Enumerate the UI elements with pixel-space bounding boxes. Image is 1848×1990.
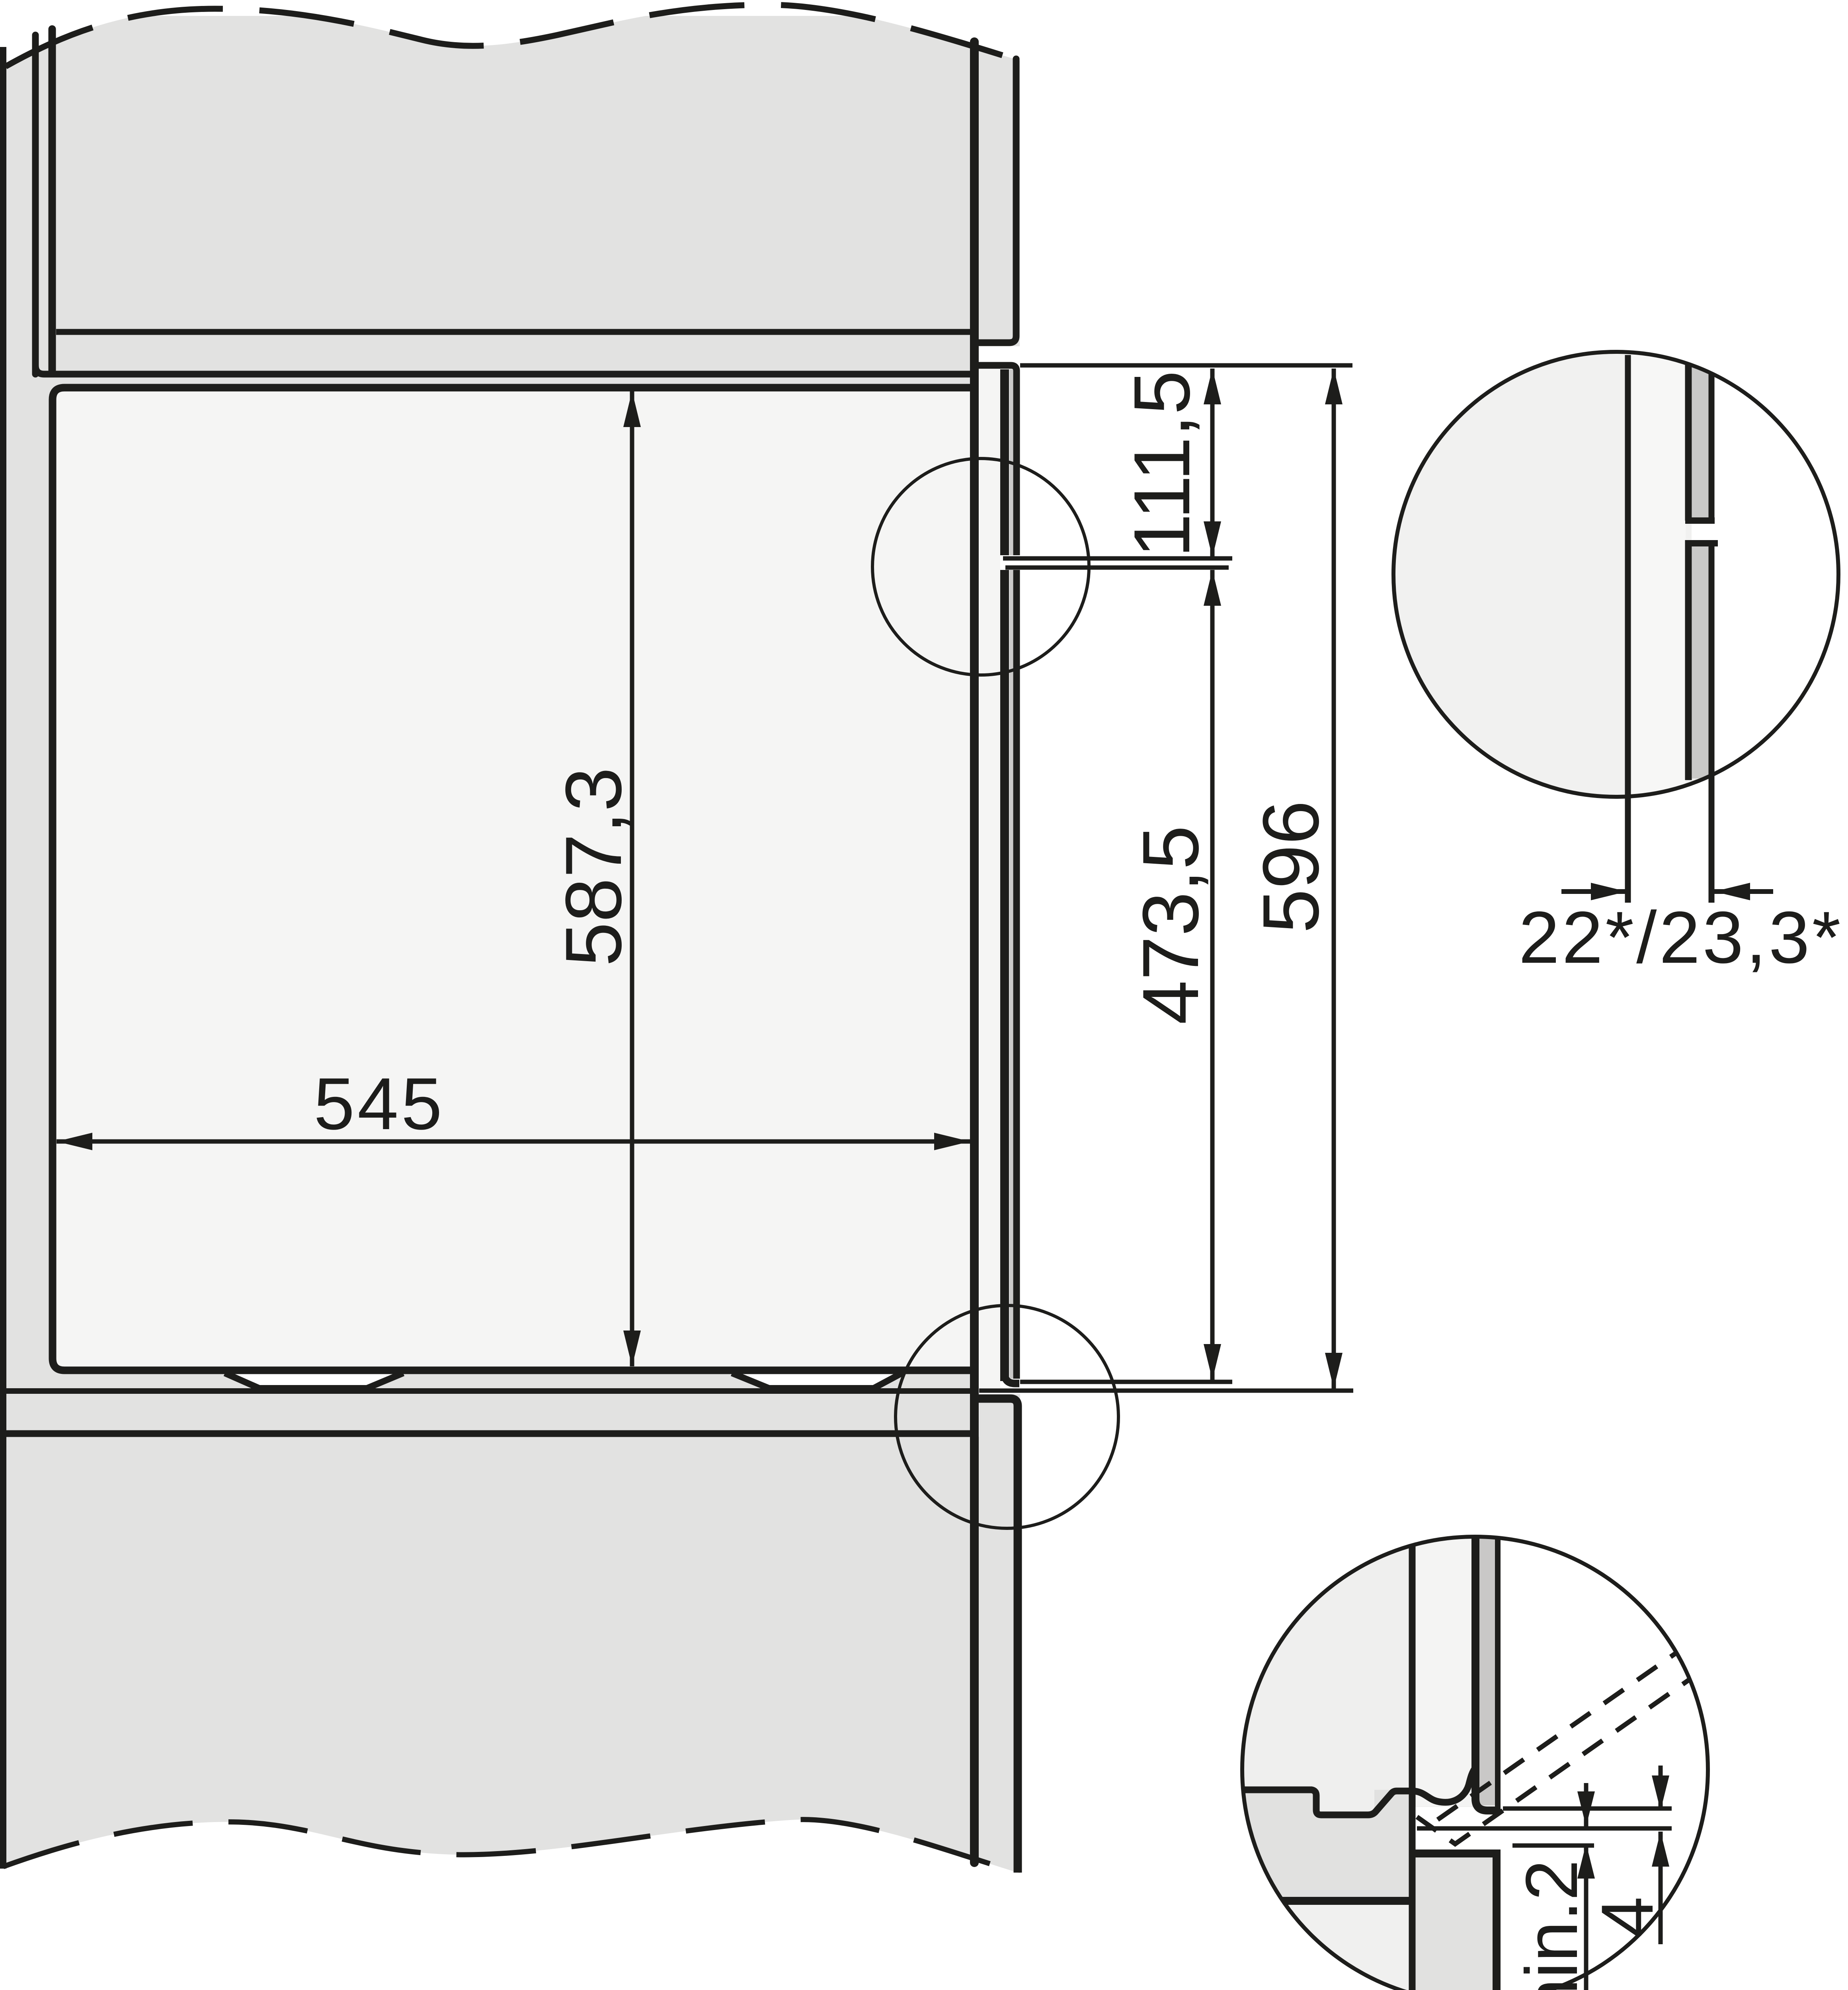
svg-text:min.2: min.2 <box>1511 1860 1593 1990</box>
svg-text:4: 4 <box>1587 1896 1668 1937</box>
svg-text:545: 545 <box>314 1063 445 1145</box>
svg-text:111,5: 111,5 <box>1118 371 1206 558</box>
svg-text:587,3: 587,3 <box>549 767 638 967</box>
svg-text:473,5: 473,5 <box>1126 825 1215 1025</box>
svg-text:22*/23,3*: 22*/23,3* <box>1518 897 1843 979</box>
svg-text:596: 596 <box>1247 800 1335 933</box>
